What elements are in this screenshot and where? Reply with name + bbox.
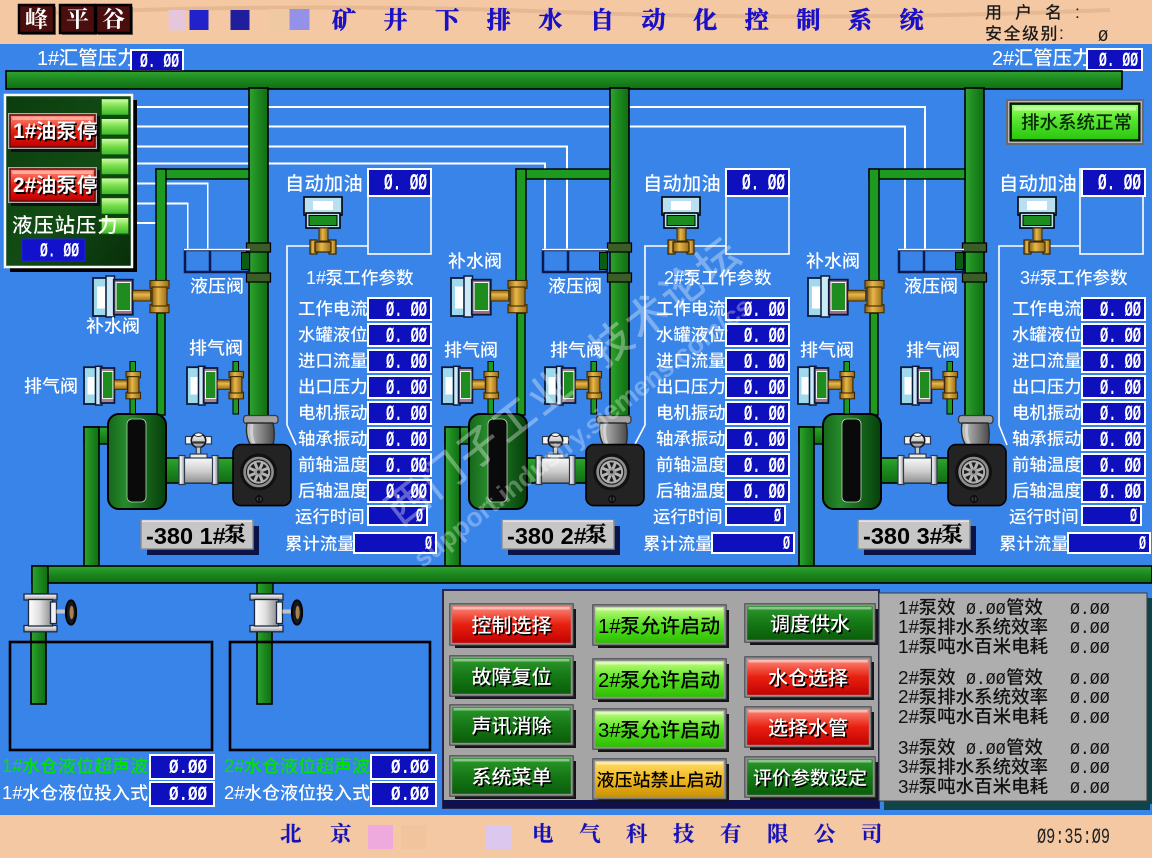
svg-text:2#: 2# bbox=[898, 707, 920, 728]
svg-text:Ø. ØØ: Ø. ØØ bbox=[744, 480, 785, 505]
svg-text:1#: 1# bbox=[306, 268, 326, 288]
svg-text:Ø: Ø bbox=[1130, 506, 1137, 528]
svg-text:Ø. ØØ: Ø. ØØ bbox=[744, 350, 785, 375]
svg-text:Ø.ØØ: Ø.ØØ bbox=[1070, 709, 1110, 728]
svg-text:Ø.ØØ: Ø.ØØ bbox=[966, 670, 1006, 689]
svg-text:Ø. ØØ: Ø. ØØ bbox=[386, 350, 427, 375]
svg-text:3#: 3# bbox=[898, 738, 920, 759]
svg-text:-380 2#: -380 2# bbox=[507, 523, 587, 549]
svg-text:Ø. ØØ: Ø. ØØ bbox=[1100, 428, 1141, 453]
svg-text:Ø. ØØ: Ø. ØØ bbox=[386, 428, 427, 453]
svg-text:Ø. ØØ: Ø. ØØ bbox=[384, 171, 427, 197]
svg-text:Ø.ØØ: Ø.ØØ bbox=[391, 784, 429, 807]
svg-text:Ø. ØØ: Ø. ØØ bbox=[1100, 480, 1141, 505]
svg-text:1#: 1# bbox=[2, 755, 23, 776]
svg-text:Ø. ØØ: Ø. ØØ bbox=[386, 298, 427, 323]
svg-text:1#: 1# bbox=[13, 120, 37, 143]
svg-text:1#: 1# bbox=[37, 48, 59, 70]
svg-text:-380 3#: -380 3# bbox=[863, 523, 943, 549]
svg-text:2#: 2# bbox=[898, 668, 920, 689]
svg-text:3#: 3# bbox=[598, 720, 621, 742]
svg-text:Ø9:35:Ø9: Ø9:35:Ø9 bbox=[1037, 825, 1110, 850]
svg-text:1#: 1# bbox=[2, 782, 23, 803]
svg-text:Ø. ØØ: Ø. ØØ bbox=[1100, 402, 1141, 427]
svg-text:3#: 3# bbox=[898, 757, 920, 778]
svg-text:Ø. ØØ: Ø. ØØ bbox=[744, 376, 785, 401]
svg-text:Ø.ØØ: Ø.ØØ bbox=[1070, 740, 1110, 759]
svg-text:3#: 3# bbox=[898, 777, 920, 798]
svg-text:Ø. ØØ: Ø. ØØ bbox=[1098, 171, 1141, 197]
svg-text::: : bbox=[1075, 2, 1080, 22]
svg-text:Ø.ØØ: Ø.ØØ bbox=[1070, 600, 1110, 619]
svg-text:Ø.ØØ: Ø.ØØ bbox=[1070, 759, 1110, 778]
svg-text:1#: 1# bbox=[898, 637, 920, 658]
svg-text:Ø. ØØ: Ø. ØØ bbox=[744, 324, 785, 349]
svg-text:Ø. ØØ: Ø. ØØ bbox=[1100, 376, 1141, 401]
svg-text:Ø. ØØ: Ø. ØØ bbox=[386, 376, 427, 401]
svg-text:Ø. ØØ: Ø. ØØ bbox=[1099, 50, 1138, 73]
svg-text:Ø: Ø bbox=[1098, 28, 1108, 47]
svg-text:Ø: Ø bbox=[783, 533, 790, 555]
svg-text:Ø.ØØ: Ø.ØØ bbox=[1070, 689, 1110, 708]
svg-text:Ø.ØØ: Ø.ØØ bbox=[169, 784, 207, 807]
svg-text:Ø.ØØ: Ø.ØØ bbox=[966, 740, 1006, 759]
svg-text:Ø.ØØ: Ø.ØØ bbox=[1070, 619, 1110, 638]
svg-text:Ø. ØØ: Ø. ØØ bbox=[1100, 298, 1141, 323]
svg-text:Ø.ØØ: Ø.ØØ bbox=[1070, 639, 1110, 658]
svg-text:-380 1#: -380 1# bbox=[146, 523, 226, 549]
svg-text:Ø. ØØ: Ø. ØØ bbox=[742, 171, 785, 197]
svg-text:2#: 2# bbox=[898, 687, 920, 708]
svg-text:Ø. ØØ: Ø. ØØ bbox=[744, 402, 785, 427]
svg-text:Ø.ØØ: Ø.ØØ bbox=[391, 757, 429, 780]
svg-text:Ø.ØØ: Ø.ØØ bbox=[966, 600, 1006, 619]
svg-text:Ø: Ø bbox=[1139, 533, 1146, 555]
svg-text:2#: 2# bbox=[224, 782, 245, 803]
svg-text::: : bbox=[1059, 23, 1064, 43]
svg-text:3#: 3# bbox=[1020, 268, 1040, 288]
svg-text:Ø. ØØ: Ø. ØØ bbox=[1100, 350, 1141, 375]
svg-text:Ø. ØØ: Ø. ØØ bbox=[386, 324, 427, 349]
svg-text:Ø. ØØ: Ø. ØØ bbox=[744, 454, 785, 479]
svg-text:Ø: Ø bbox=[774, 506, 781, 528]
svg-text:Ø. ØØ: Ø. ØØ bbox=[744, 428, 785, 453]
svg-text:2#: 2# bbox=[598, 670, 621, 692]
svg-text:Ø.ØØ: Ø.ØØ bbox=[1070, 670, 1110, 689]
svg-text:2#: 2# bbox=[224, 755, 245, 776]
svg-text:Ø.ØØ: Ø.ØØ bbox=[1070, 779, 1110, 798]
svg-text:Ø. ØØ: Ø. ØØ bbox=[386, 402, 427, 427]
svg-text:1#: 1# bbox=[598, 616, 621, 638]
svg-text:Ø. ØØ: Ø. ØØ bbox=[386, 454, 427, 479]
svg-text:2#: 2# bbox=[992, 48, 1014, 70]
svg-text:1#: 1# bbox=[898, 617, 920, 638]
svg-text:Ø.ØØ: Ø.ØØ bbox=[169, 757, 207, 780]
svg-text:Ø. ØØ: Ø. ØØ bbox=[1100, 324, 1141, 349]
svg-text:2#: 2# bbox=[13, 174, 37, 197]
svg-text:Ø. ØØ: Ø. ØØ bbox=[1100, 454, 1141, 479]
svg-text:1#: 1# bbox=[898, 598, 920, 619]
svg-text:Ø. ØØ: Ø. ØØ bbox=[40, 240, 79, 263]
